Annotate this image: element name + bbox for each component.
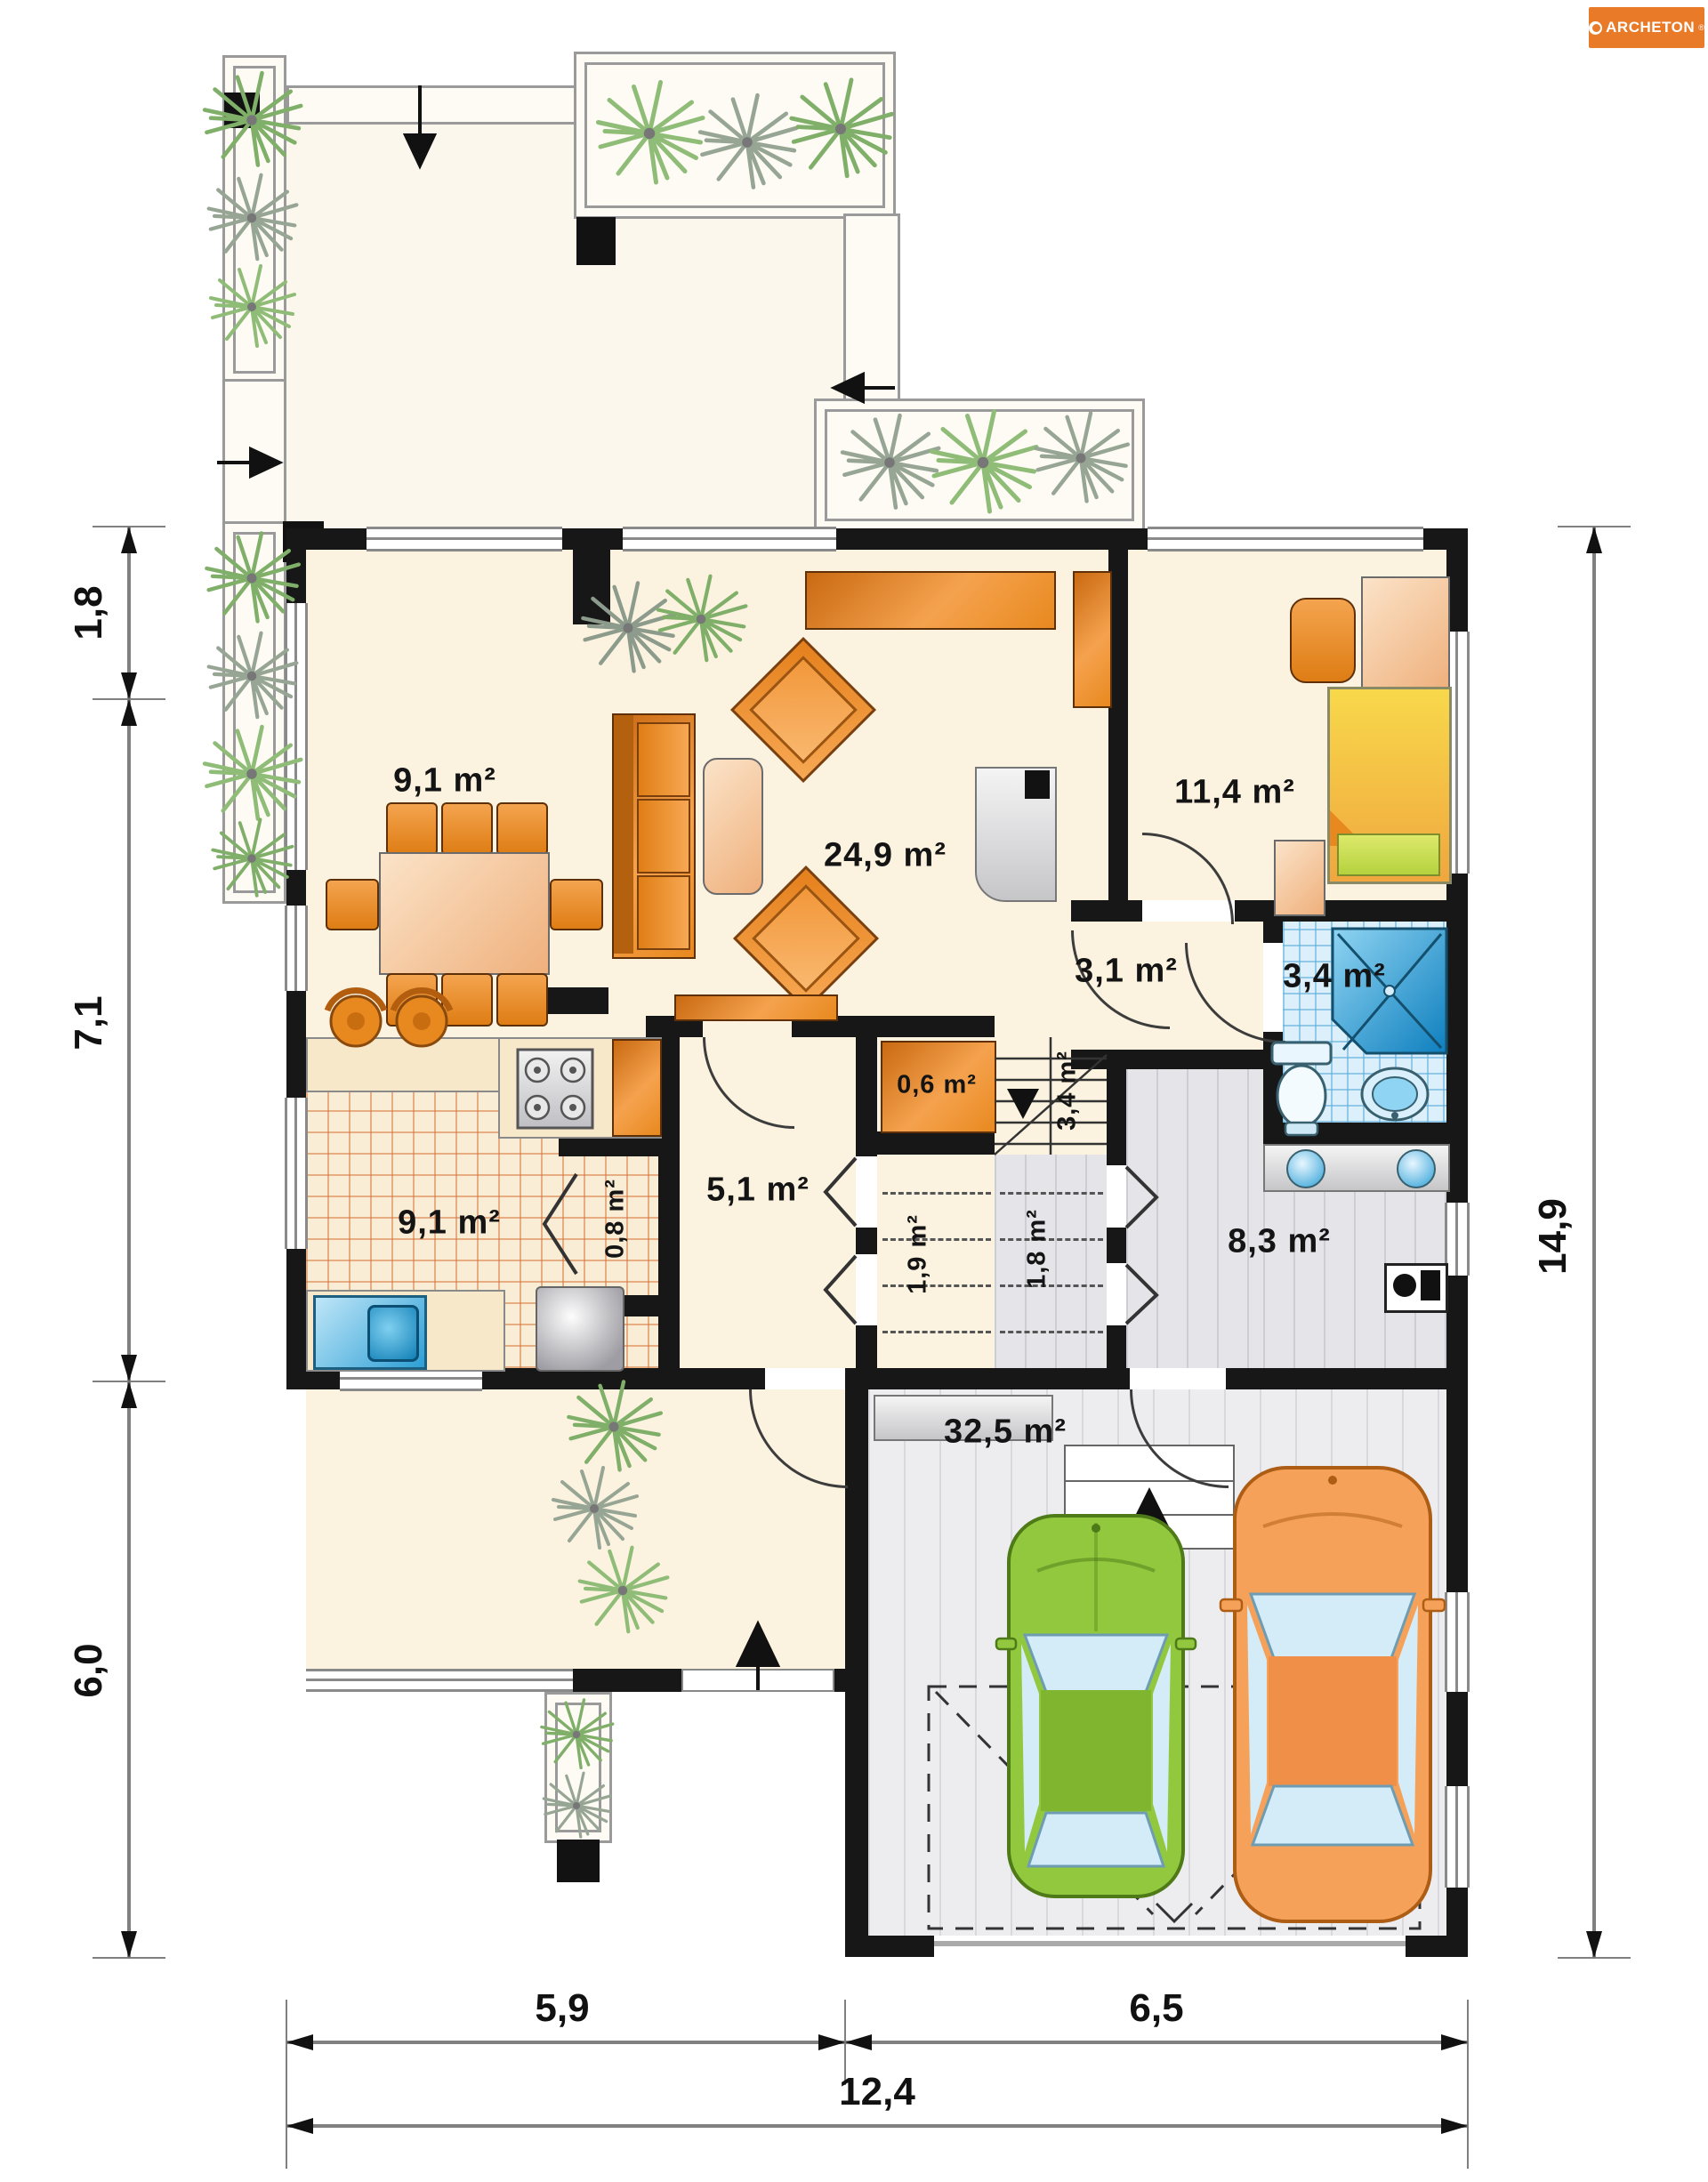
dim-left-top: 1,8 [67,585,111,640]
label-dining-area: 9,1 m² [393,762,496,801]
car-orange [1221,1468,1445,1921]
plants-terrace [205,73,1128,896]
archeton-logo-reg: ® [1698,23,1704,32]
floor-plan: 9,1 m² 24,9 m² 11,4 m² 3,1 m² 3,4 m² 0,6… [0,0,1708,2182]
plan-linework [0,0,1708,2182]
dim-right-total: 14,9 [1531,1198,1575,1275]
label-corridor-a-area: 1,9 m² [904,1214,933,1294]
toilet [1272,1043,1331,1135]
label-wardrobe-area: 0,6 m² [897,1071,977,1100]
stairs [995,1037,1107,1155]
label-garage-area: 32,5 m² [944,1413,1067,1452]
label-pantry-area: 0,8 m² [601,1179,631,1259]
label-living-area: 24,9 m² [824,837,947,875]
label-stairs-area: 3,4 m² [1053,1051,1083,1131]
stove [518,1050,592,1128]
label-hall-area: 5,1 m² [706,1172,810,1210]
label-bathroom-area: 3,4 m² [1283,958,1386,996]
archeton-logo-icon [1589,21,1602,35]
door-chevrons [544,1158,1156,1324]
entrance-arrow [738,1624,777,1690]
dim-bottom-right: 6,5 [1129,1986,1183,2031]
car-green [996,1516,1196,1896]
label-kitchen-area: 9,1 m² [398,1204,501,1243]
bathroom-sink [1362,1068,1428,1120]
label-bedroom-area: 11,4 m² [1174,774,1295,812]
label-corridor-b-area: 1,8 m² [1023,1209,1052,1289]
archeton-logo-text: ARCHETON [1606,19,1695,36]
dimension-lines [93,527,1631,2169]
dim-left-mid: 7,1 [67,995,111,1050]
dim-bottom-left: 5,9 [535,1986,589,2031]
label-utility-area: 8,3 m² [1228,1223,1331,1261]
bar-stools [327,990,450,1046]
label-hall-upper-area: 3,1 m² [1075,953,1178,991]
terrace-arrows [217,85,895,476]
dim-left-bottom: 6,0 [67,1643,111,1697]
dim-bottom-total: 12,4 [839,2070,915,2114]
archeton-logo: ARCHETON ® [1589,7,1704,48]
